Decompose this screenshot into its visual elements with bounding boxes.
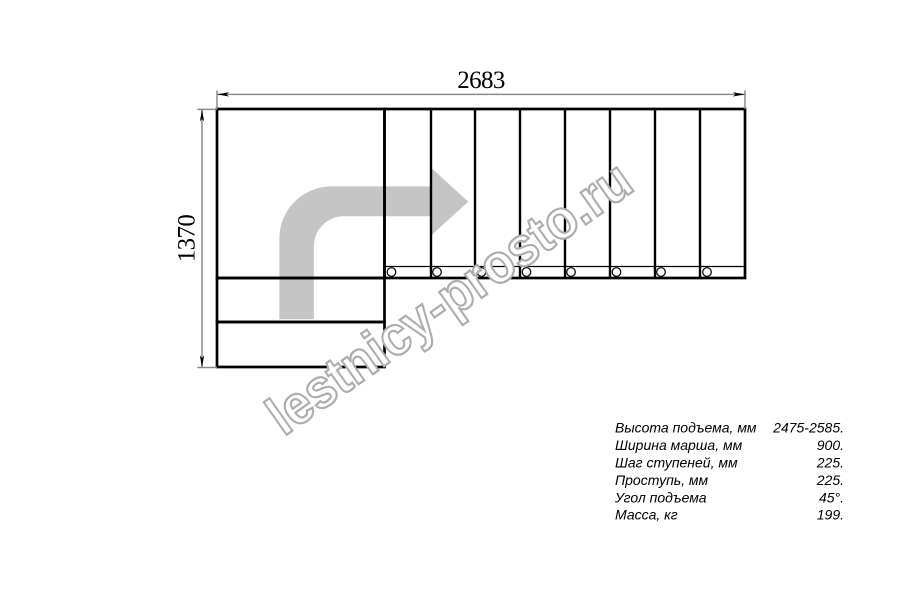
svg-text:199.: 199. — [817, 507, 844, 523]
svg-text:45°.: 45°. — [819, 490, 844, 506]
svg-text:1370: 1370 — [174, 215, 201, 263]
svg-text:225.: 225. — [816, 455, 844, 471]
svg-text:225.: 225. — [816, 472, 844, 488]
svg-text:Проступь, мм: Проступь, мм — [615, 472, 709, 488]
svg-text:900.: 900. — [817, 437, 844, 453]
svg-text:Высота подъема, мм: Высота подъема, мм — [615, 420, 757, 436]
svg-text:Шаг ступеней, мм: Шаг ступеней, мм — [615, 455, 738, 471]
svg-text:Ширина марша, мм: Ширина марша, мм — [615, 437, 743, 453]
svg-text:Масса, кг: Масса, кг — [615, 507, 678, 523]
svg-text:2683: 2683 — [457, 67, 505, 94]
svg-text:2475-2585.: 2475-2585. — [772, 420, 844, 436]
svg-text:Угол подъема: Угол подъема — [614, 490, 707, 506]
